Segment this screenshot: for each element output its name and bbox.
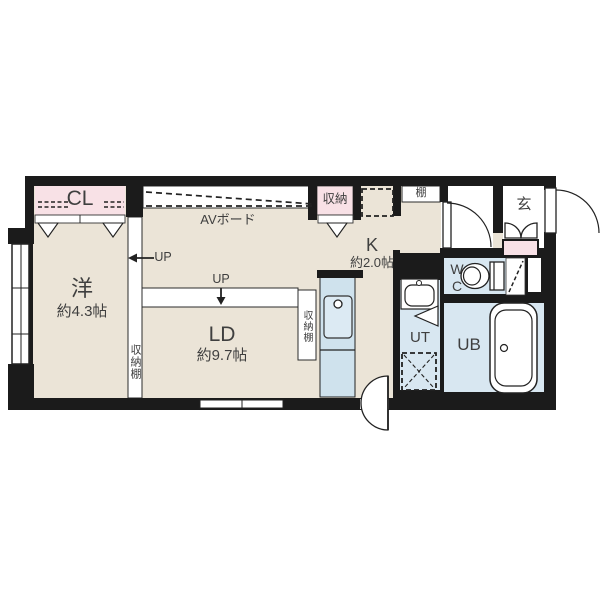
wall-segment xyxy=(8,228,25,244)
wall-segment xyxy=(393,250,400,398)
storage-label: 収納 xyxy=(317,193,353,206)
kitchen-size: 約2.0帖 xyxy=(342,256,402,270)
wall-segment xyxy=(393,186,401,216)
shelf-label: 棚 xyxy=(402,188,440,200)
western-room-label: 洋 xyxy=(39,277,125,300)
living-dining-label: LD xyxy=(172,324,272,346)
up-label-down: UP xyxy=(206,273,236,286)
wall-segment xyxy=(544,232,556,410)
av-board-label: AVボード xyxy=(175,213,281,227)
wall-segment xyxy=(317,270,363,278)
wall-segment xyxy=(126,176,143,217)
bath-label: UB xyxy=(450,336,488,354)
faucet-icon xyxy=(334,300,342,308)
bathtub-drain-icon xyxy=(501,345,508,352)
living-dining-size: 約9.7帖 xyxy=(172,348,272,364)
storage-shelf-label: 収納棚 xyxy=(129,330,140,394)
storage-door-track xyxy=(318,215,353,223)
wall-segment xyxy=(440,186,448,202)
wall-segment xyxy=(400,253,444,280)
bathtub xyxy=(490,303,537,393)
wall-segment xyxy=(444,392,544,398)
washbasin-faucet-icon xyxy=(417,281,422,286)
kitchen-label: K xyxy=(342,236,402,255)
closet-label: CL xyxy=(55,188,105,210)
av-board-area xyxy=(143,186,317,208)
wall-segment xyxy=(25,176,556,186)
wall-segment xyxy=(400,390,444,398)
toilet-tank xyxy=(490,262,504,290)
pipe-space xyxy=(528,258,541,292)
front-door-swing xyxy=(556,190,599,233)
floor-plan: CL AVボード 洋 約4.3帖 LD 約9.7帖 K 約2.0帖 収納 棚 玄… xyxy=(0,0,600,600)
front-door-leaf xyxy=(545,188,556,233)
utility-label: UT xyxy=(405,330,435,346)
shoe-box xyxy=(503,240,538,256)
hall-door-leaf xyxy=(443,202,451,248)
wall-segment xyxy=(25,186,34,244)
wall-segment xyxy=(353,186,361,220)
toilet-label: WC xyxy=(450,259,464,297)
wall-segment xyxy=(493,186,503,233)
wall-segment xyxy=(440,258,444,398)
up-label-left: UP xyxy=(148,251,178,264)
entrance-label: 玄 xyxy=(513,197,535,213)
western-room-size: 約4.3帖 xyxy=(39,304,125,320)
storage-shelf-label: 収納棚 xyxy=(301,296,311,356)
